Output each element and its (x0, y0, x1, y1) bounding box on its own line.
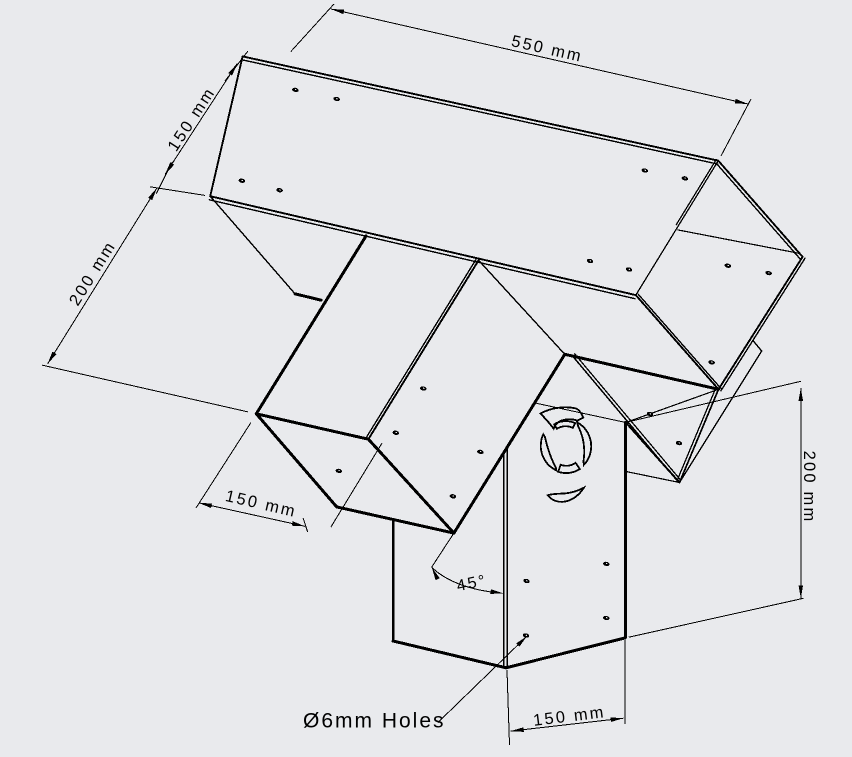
svg-text:Ø6mm Holes: Ø6mm Holes (303, 710, 446, 733)
svg-text:200 mm: 200 mm (800, 451, 818, 524)
